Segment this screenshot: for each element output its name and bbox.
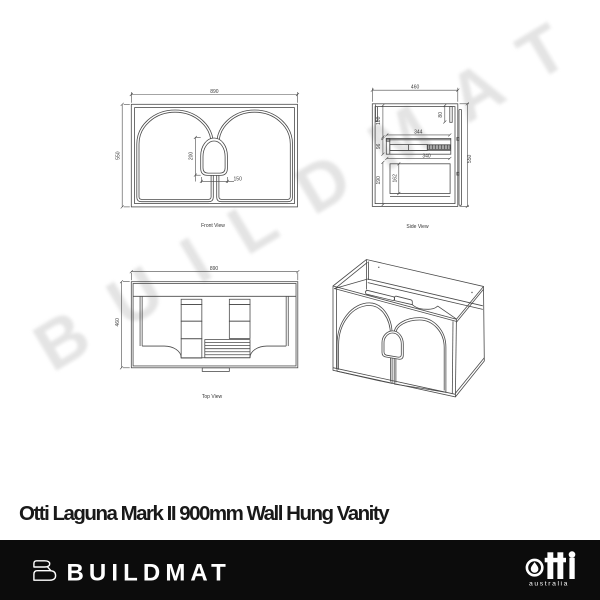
svg-text:Side View: Side View xyxy=(406,224,429,230)
svg-text:340: 340 xyxy=(422,153,431,159)
svg-text:162: 162 xyxy=(392,174,398,183)
svg-text:344: 344 xyxy=(414,130,423,136)
svg-text:Top View: Top View xyxy=(202,394,223,400)
svg-text:550: 550 xyxy=(467,155,473,164)
svg-text:190: 190 xyxy=(376,176,382,185)
svg-text:890: 890 xyxy=(210,266,219,272)
svg-text:460: 460 xyxy=(411,85,420,91)
svg-text:96: 96 xyxy=(376,143,382,149)
svg-text:200: 200 xyxy=(189,152,195,161)
svg-text:890: 890 xyxy=(210,89,219,95)
svg-text:Front View: Front View xyxy=(201,223,225,229)
svg-text:460: 460 xyxy=(115,318,121,327)
svg-text:550: 550 xyxy=(116,151,122,160)
svg-text:180: 180 xyxy=(376,116,382,125)
svg-text:80: 80 xyxy=(438,112,444,118)
svg-text:BUILDMAT: BUILDMAT xyxy=(67,560,231,587)
svg-text:australia: australia xyxy=(529,580,569,587)
svg-text:150: 150 xyxy=(234,176,243,182)
